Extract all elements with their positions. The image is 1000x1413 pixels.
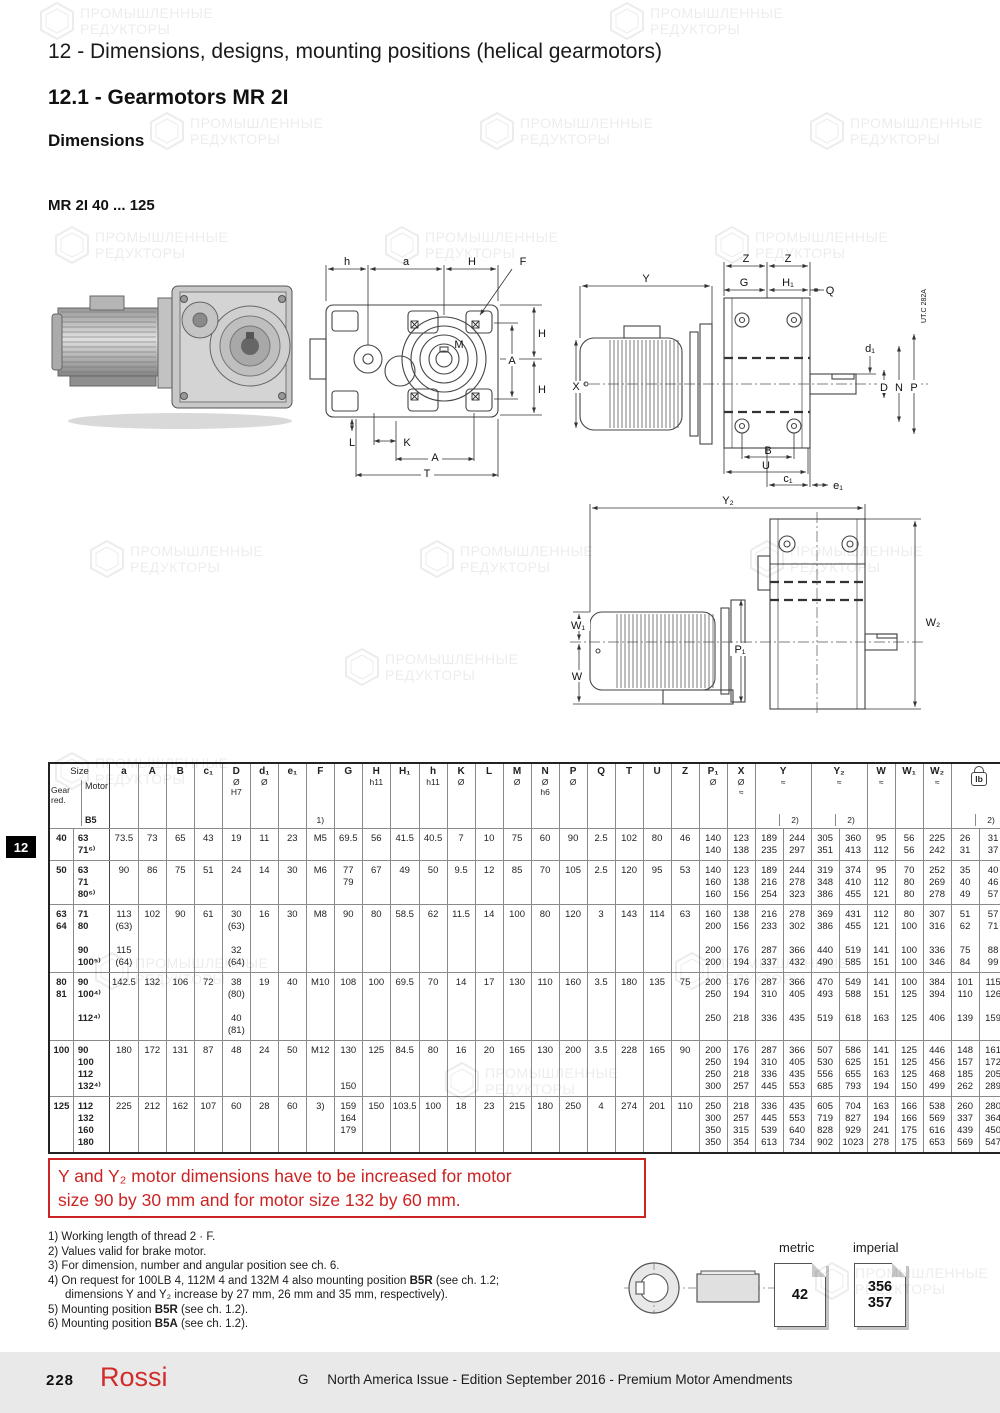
table-row: 10090 100 112 132⁴⁾18017213187482450M121…: [49, 1041, 1000, 1097]
dim-label-c1: c₁: [783, 473, 793, 485]
mounting-view-drawing: Y₂ W₂ W₁ W P₁: [565, 494, 965, 730]
dimension-cell: 123 138: [727, 829, 755, 861]
motor-size-cell: 63 71⁶⁾: [73, 829, 109, 861]
dimension-cell: 176 194 218: [727, 973, 755, 1041]
dimension-cell: 200: [559, 1041, 587, 1097]
dimension-cell: 252 269 278: [923, 861, 951, 905]
dimension-cell: 212: [138, 1097, 166, 1154]
dimension-cell: 162: [166, 1097, 194, 1154]
table-row: 125112 132 160 1802252121621076028603)15…: [49, 1097, 1000, 1154]
dimension-cell: 166 166 175 175: [895, 1097, 923, 1154]
watermark: ПРОМЫШЛЕННЫЕРЕДУКТОРЫ: [810, 112, 983, 150]
gearmotor-photo: [50, 268, 305, 433]
dim-label-L: L: [349, 437, 355, 449]
watermark-hexagon-icon: [55, 226, 89, 264]
dimension-cell: 53: [671, 861, 699, 905]
dimension-cell: 110: [531, 973, 559, 1041]
dim-label-A: A: [508, 355, 516, 367]
dim-label-A: A: [431, 452, 439, 464]
shaft-end-icon: [622, 1252, 782, 1324]
dim-label-Q: Q: [826, 285, 835, 297]
gear-size-cell: 80 81: [49, 973, 73, 1041]
dimension-cell: 319 348 386: [811, 861, 839, 905]
column-header-W2: W₂≈: [923, 763, 951, 829]
drawing-code: UT.C 282A: [921, 289, 928, 323]
dimension-cell: 605 719 828 902: [811, 1097, 839, 1154]
dimension-cell: 130: [531, 1041, 559, 1097]
dim-label-H: H: [538, 328, 546, 340]
dimension-cell: 123 138 156: [727, 861, 755, 905]
watermark: ПРОМЫШЛЕННЫЕРЕДУКТОРЫ: [40, 2, 213, 40]
dimension-cell: 131: [166, 1041, 194, 1097]
dimension-cell: 24: [222, 861, 250, 905]
column-header-G: G: [334, 763, 362, 829]
column-header-Y2: Y₂≈2): [811, 763, 867, 829]
dimension-cell: 180: [110, 1041, 139, 1097]
dimension-cell: 215: [503, 1097, 531, 1154]
gear-size-cell: 125: [49, 1097, 73, 1154]
table-row: 80 8190 100⁴⁾ 112⁴⁾142.51321067238 (80) …: [49, 973, 1000, 1041]
note-box: Y and Y₂ motor dimensions have to be inc…: [48, 1158, 646, 1218]
dimension-cell: 12: [475, 861, 503, 905]
dimension-cell: M10: [306, 973, 334, 1041]
dimension-cell: 189 235: [755, 829, 783, 861]
dimension-cell: 130: [503, 973, 531, 1041]
dimension-cell: 86: [138, 861, 166, 905]
dimension-cell: 46: [671, 829, 699, 861]
dim-label-H: H: [468, 256, 476, 268]
dimension-cell: 49: [390, 861, 419, 905]
gear-reducer-header: Gear red.: [51, 780, 81, 826]
dimension-cell: 90: [671, 1041, 699, 1097]
dimension-cell: 225: [110, 1097, 139, 1154]
dimension-cell: 140 160 160: [699, 861, 727, 905]
pound-weight-icon: lb: [971, 772, 987, 786]
dimension-cell: 287 310 336: [755, 973, 783, 1041]
dim-label-W: W: [572, 671, 583, 683]
dimension-cell: 160: [559, 973, 587, 1041]
dimension-cell: 23: [278, 829, 306, 861]
dimension-cell: 70: [419, 973, 447, 1041]
dimension-cell: 218 257 315 354: [727, 1097, 755, 1154]
dimension-cell: 40 46 57: [979, 861, 1000, 905]
dimension-cell: 40.5: [419, 829, 447, 861]
column-header-B: B: [166, 763, 194, 829]
dimension-cell: 172: [138, 1041, 166, 1097]
column-header-a: a: [110, 763, 139, 829]
dimension-cell: 95: [643, 861, 671, 905]
dimension-cell: 26 31: [951, 829, 979, 861]
dimension-cell: 107: [194, 1097, 222, 1154]
dimension-cell: 163 194 241 278: [867, 1097, 895, 1154]
dimension-cell: 30: [278, 905, 306, 973]
dimension-cell: 384 394 406: [923, 973, 951, 1041]
footnotes-list: 1) Working length of thread 2 · F.2) Val…: [48, 1230, 698, 1332]
dim-label-H: H: [538, 384, 546, 396]
dimension-cell: 108: [334, 973, 362, 1041]
dimension-cell: 200 250 250 300: [699, 1041, 727, 1097]
column-header-Y: Y≈2): [755, 763, 811, 829]
dim-label-W2: W₂: [926, 617, 941, 629]
gear-size-cell: 63 64: [49, 905, 73, 973]
column-header-c1: c₁: [194, 763, 222, 829]
dimension-cell: 165: [503, 1041, 531, 1097]
dimension-cell: 11.5: [447, 905, 475, 973]
dimension-cell: 63: [671, 905, 699, 973]
front-view-drawing: h a H F H A H M L K A T: [296, 253, 551, 488]
dimension-cell: 216 233 287 337: [755, 905, 783, 973]
dimension-cell: 102: [138, 905, 166, 973]
watermark-hexagon-icon: [810, 112, 844, 150]
metric-page-number: 42: [792, 1287, 808, 1303]
footnote: 6) Mounting position B5A (see ch. 1.2).: [48, 1317, 698, 1332]
dimension-cell: 280 364 450 547: [979, 1097, 1000, 1154]
dim-label-B: B: [764, 445, 771, 457]
metric-page-icon: 42: [774, 1263, 826, 1327]
dimension-cell: 30 (63) 32 (64): [222, 905, 250, 973]
dimension-cell: 80: [419, 1041, 447, 1097]
dimensions-table: SizeGear red.MotorB5aABc₁DØ H7d₁Øe₁F1)GH…: [48, 762, 1000, 1154]
dimension-cell: 20: [475, 1041, 503, 1097]
dimension-cell: 62: [419, 905, 447, 973]
dim-label-P1: P₁: [734, 644, 745, 656]
dimension-cell: 307 316 336 346: [923, 905, 951, 973]
column-header-K: KØ: [447, 763, 475, 829]
dimension-cell: 189 216 254: [755, 861, 783, 905]
dimension-cell: 18: [447, 1097, 475, 1154]
dimension-cell: M6: [306, 861, 334, 905]
brand-logo: Rossi: [100, 1362, 168, 1393]
dimension-cell: 143: [615, 905, 643, 973]
dimension-cell: 75: [166, 861, 194, 905]
dimension-cell: 43: [194, 829, 222, 861]
dimension-cell: 50: [278, 1041, 306, 1097]
dimension-cell: 19: [250, 973, 278, 1041]
column-header-W: W≈: [867, 763, 895, 829]
dimension-cell: 50: [419, 861, 447, 905]
dimension-cell: 374 410 455: [839, 861, 867, 905]
dim-label-e1: e₁: [833, 480, 843, 492]
side-view-drawing: Z Z Y G H₁ Q X d₁ D N P B U c₁ e₁ UT.C 2…: [566, 242, 936, 494]
dim-label-D: D: [880, 382, 888, 394]
dimension-cell: 446 456 468 499: [923, 1041, 951, 1097]
dimension-cell: 14: [447, 973, 475, 1041]
dimension-cell: 101 110 139: [951, 973, 979, 1041]
dimension-cell: 10: [475, 829, 503, 861]
dimension-cell: 38 (80) 40 (81): [222, 973, 250, 1041]
dim-label-Z: Z: [785, 253, 792, 265]
metric-label: metric: [779, 1240, 814, 1255]
catalog-page: 12 - Dimensions, designs, mounting posit…: [0, 0, 1000, 1413]
dimension-cell: 48: [222, 1041, 250, 1097]
dimension-cell: 75: [503, 829, 531, 861]
motor-size-cell: 112 132 160 180: [73, 1097, 109, 1154]
dimension-cell: 23: [475, 1097, 503, 1154]
dimension-cell: 3: [587, 905, 615, 973]
watermark: ПРОМЫШЛЕННЫЕРЕДУКТОРЫ: [610, 2, 783, 40]
column-header-M: MØ: [503, 763, 531, 829]
dimension-cell: 366 405 435 553: [783, 1041, 811, 1097]
dimension-cell: 110: [671, 1097, 699, 1154]
column-header-U: U: [643, 763, 671, 829]
dimension-cell: 58.5: [390, 905, 419, 973]
dimension-cell: 69.5: [390, 973, 419, 1041]
column-header-d1: d₁Ø: [250, 763, 278, 829]
dimension-cell: 120: [559, 905, 587, 973]
column-header-lb: lb2): [951, 763, 1000, 829]
dimension-cell: 142.5: [110, 973, 139, 1041]
watermark-hexagon-icon: [480, 112, 514, 150]
dimension-cell: 73: [138, 829, 166, 861]
dimension-cell: 7: [447, 829, 475, 861]
dimension-cell: 73.5: [110, 829, 139, 861]
dimension-cell: 366 405 435: [783, 973, 811, 1041]
dimension-cell: 305 351: [811, 829, 839, 861]
dimension-cell: 2.5: [587, 861, 615, 905]
dimension-cell: 57 71 88 99: [979, 905, 1000, 973]
dim-label-Y2: Y₂: [722, 495, 734, 507]
dimension-cell: 201: [643, 1097, 671, 1154]
table-row: 63 6471 80 90 100⁵⁾113 (63) 115 (64)1029…: [49, 905, 1000, 973]
watermark-hexagon-icon: [150, 112, 184, 150]
dimension-cell: 4: [587, 1097, 615, 1154]
imperial-label: imperial: [853, 1240, 899, 1255]
dimension-cell: 2.5: [587, 829, 615, 861]
dimension-cell: 112 121 141 151: [867, 905, 895, 973]
dimension-cell: 115 126 159: [979, 973, 1000, 1041]
dimension-cell: 60: [278, 1097, 306, 1154]
dimension-cell: 28: [250, 1097, 278, 1154]
gear-size-cell: 40: [49, 829, 73, 861]
motor-size-cell: 63 71 80⁶⁾: [73, 861, 109, 905]
dimension-cell: 130 150: [334, 1041, 362, 1097]
dimension-cell: 200 250 250: [699, 973, 727, 1041]
column-header-T: T: [615, 763, 643, 829]
dimension-cell: 90: [166, 905, 194, 973]
dimension-cell: 16: [447, 1041, 475, 1097]
dimension-cell: 19: [222, 829, 250, 861]
dimension-cell: 17: [475, 973, 503, 1041]
dimension-cell: 244 297: [783, 829, 811, 861]
dimension-cell: 69.5: [334, 829, 362, 861]
column-header-N: NØ h6: [531, 763, 559, 829]
dimension-cell: 120: [615, 861, 643, 905]
column-header-h: hh11: [419, 763, 447, 829]
motor-header: Motor: [85, 780, 108, 792]
table-row: 5063 71 80⁶⁾90867551241430M677 796749509…: [49, 861, 1000, 905]
chapter-title: 12 - Dimensions, designs, mounting posit…: [48, 40, 662, 64]
dimension-cell: 85: [503, 861, 531, 905]
dimension-cell: 90: [110, 861, 139, 905]
dimension-cell: 336 445 539 613: [755, 1097, 783, 1154]
dimension-cell: 11: [250, 829, 278, 861]
dim-label-Y: Y: [642, 273, 650, 285]
dimension-cell: 150: [362, 1097, 390, 1154]
dimension-cell: 24: [250, 1041, 278, 1097]
dimension-cell: 80 100 100 100: [895, 905, 923, 973]
dimension-cell: 161 172 205 289: [979, 1041, 1000, 1097]
dim-label-d1: d₁: [865, 343, 875, 355]
column-header-X: XØ ≈: [727, 763, 755, 829]
model-range-heading: MR 2I 40 ... 125: [48, 197, 155, 214]
dimension-cell: M5: [306, 829, 334, 861]
edition-text: G North America Issue - Edition Septembe…: [298, 1372, 792, 1387]
column-header-A: A: [138, 763, 166, 829]
footnote: 1) Working length of thread 2 · F.: [48, 1230, 698, 1245]
column-header-P1: P₁Ø: [699, 763, 727, 829]
dimension-cell: 165: [643, 1041, 671, 1097]
dimension-cell: 84.5: [390, 1041, 419, 1097]
dimension-cell: 100: [362, 973, 390, 1041]
dimension-cell: 435 553 640 734: [783, 1097, 811, 1154]
dimension-cell: 225 242: [923, 829, 951, 861]
dimension-cell: 100: [503, 905, 531, 973]
dimension-cell: 60: [222, 1097, 250, 1154]
dim-label-P: P: [910, 382, 917, 394]
column-header-P: PØ: [559, 763, 587, 829]
dim-label-X: X: [572, 381, 580, 393]
footnote: 3) For dimension, number and angular pos…: [48, 1259, 698, 1274]
dimension-cell: 138 156 176 194: [727, 905, 755, 973]
dimension-cell: 180: [615, 973, 643, 1041]
dim-label-H1: H₁: [782, 277, 794, 289]
dimension-cell: 141 151 163 194: [867, 1041, 895, 1097]
dimension-cell: 250: [559, 1097, 587, 1154]
dimension-cell: 125: [362, 1041, 390, 1097]
dim-label-F: F: [520, 256, 527, 268]
dimension-cell: 80: [643, 829, 671, 861]
watermark-hexagon-icon: [345, 648, 379, 686]
chapter-tab: 12: [6, 836, 36, 858]
mounting-b5-label: B5: [85, 814, 108, 826]
motor-size-cell: 71 80 90 100⁵⁾: [73, 905, 109, 973]
dim-label-U: U: [762, 460, 770, 472]
dimension-cell: 95 112: [867, 829, 895, 861]
dimension-cell: 159 164 179: [334, 1097, 362, 1154]
dim-label-T: T: [424, 468, 431, 480]
dimension-cell: 95 112 121: [867, 861, 895, 905]
page-number: 228: [46, 1372, 74, 1389]
dimension-cell: 80: [531, 905, 559, 973]
column-header-W1: W₁: [895, 763, 923, 829]
dimension-cell: 72: [194, 973, 222, 1041]
dimension-cell: 102: [615, 829, 643, 861]
footnote: 5) Mounting position B5R (see ch. 1.2).: [48, 1303, 698, 1318]
dimension-cell: 41.5: [390, 829, 419, 861]
dimension-cell: 549 588 618: [839, 973, 867, 1041]
watermark: ПРОМЫШЛЕННЫЕРЕДУКТОРЫ: [345, 648, 518, 686]
dimension-cell: 14: [475, 905, 503, 973]
dimension-cell: 586 625 655 793: [839, 1041, 867, 1097]
dim-label-G: G: [740, 277, 749, 289]
dimension-cell: 704 827 929 1023: [839, 1097, 867, 1154]
column-header-e1: e₁: [278, 763, 306, 829]
dimension-cell: 470 493 519: [811, 973, 839, 1041]
dimension-cell: M12: [306, 1041, 334, 1097]
dimension-cell: 9.5: [447, 861, 475, 905]
footnote: 4) On request for 100LB 4, 112M 4 and 13…: [48, 1274, 698, 1303]
watermark: ПРОМЫШЛЕННЫЕРЕДУКТОРЫ: [480, 112, 653, 150]
dimension-cell: 70 80 80: [895, 861, 923, 905]
dimension-cell: 67: [362, 861, 390, 905]
dimension-cell: 507 530 556 685: [811, 1041, 839, 1097]
watermark-hexagon-icon: [610, 2, 644, 40]
column-header-F: F1): [306, 763, 334, 829]
dim-label-Z: Z: [743, 253, 750, 265]
imperial-page-icon: 356 357: [854, 1263, 906, 1327]
dim-label-N: N: [895, 382, 903, 394]
column-header-Z: Z: [671, 763, 699, 829]
dimension-cell: 3): [306, 1097, 334, 1154]
dim-label-W1: W₁: [571, 620, 585, 632]
gear-size-cell: 50: [49, 861, 73, 905]
dimension-cell: 360 413: [839, 829, 867, 861]
dimension-cell: 77 79: [334, 861, 362, 905]
dimension-cell: 132: [138, 973, 166, 1041]
dimension-cell: 3.5: [587, 1041, 615, 1097]
dim-label-a: a: [403, 256, 410, 268]
dimensions-heading: Dimensions: [48, 131, 144, 151]
dimension-cell: 80: [362, 905, 390, 973]
column-header-H1: H₁: [390, 763, 419, 829]
dimension-cell: 250 300 350 350: [699, 1097, 727, 1154]
dimension-cell: 60: [531, 829, 559, 861]
motor-size-cell: 90 100⁴⁾ 112⁴⁾: [73, 973, 109, 1041]
dimension-cell: 538 569 616 653: [923, 1097, 951, 1154]
section-title: 12.1 - Gearmotors MR 2I: [48, 86, 288, 110]
dimension-cell: 31 37: [979, 829, 1000, 861]
dimension-cell: 51 62 75 84: [951, 905, 979, 973]
watermark: ПРОМЫШЛЕННЫЕРЕДУКТОРЫ: [55, 226, 228, 264]
motor-size-cell: 90 100 112 132⁴⁾: [73, 1041, 109, 1097]
watermark-hexagon-icon: [40, 2, 74, 40]
dimension-cell: 100 125 125: [895, 973, 923, 1041]
dimension-cell: 160 200 200 200: [699, 905, 727, 973]
watermark: ПРОМЫШЛЕННЫЕРЕДУКТОРЫ: [150, 112, 323, 150]
dimension-cell: 61: [194, 905, 222, 973]
dimension-cell: 75: [671, 973, 699, 1041]
dimension-cell: 16: [250, 905, 278, 973]
dim-label-K: K: [403, 437, 411, 449]
dimension-cell: 176 194 218 257: [727, 1041, 755, 1097]
dim-label-h: h: [344, 256, 350, 268]
dimension-cell: 148 157 185 262: [951, 1041, 979, 1097]
size-header-cell: SizeGear red.MotorB5: [49, 763, 110, 829]
dimension-cell: 30: [278, 861, 306, 905]
dimension-cell: 114: [643, 905, 671, 973]
dimension-cell: 3.5: [587, 973, 615, 1041]
dim-label-M: M: [454, 339, 463, 351]
dimension-cell: 431 455 519 585: [839, 905, 867, 973]
dimension-cell: 106: [166, 973, 194, 1041]
dimension-cell: 56 56: [895, 829, 923, 861]
dimension-cell: 87: [194, 1041, 222, 1097]
watermark-hexagon-icon: [90, 540, 124, 578]
dimension-cell: 140 140: [699, 829, 727, 861]
table-row: 4063 71⁶⁾73.5736543191123M569.55641.540.…: [49, 829, 1000, 861]
dimension-cell: 244 278 323: [783, 861, 811, 905]
dimension-cell: 51: [194, 861, 222, 905]
footnote: 2) Values valid for brake motor.: [48, 1245, 698, 1260]
dimension-cell: 105: [559, 861, 587, 905]
dimension-cell: 228: [615, 1041, 643, 1097]
gear-size-cell: 100: [49, 1041, 73, 1097]
dimension-cell: 100: [419, 1097, 447, 1154]
dimension-cell: 260 337 439 569: [951, 1097, 979, 1154]
dimension-cell: 113 (63) 115 (64): [110, 905, 139, 973]
column-header-H: Hh11: [362, 763, 390, 829]
dimension-cell: 135: [643, 973, 671, 1041]
